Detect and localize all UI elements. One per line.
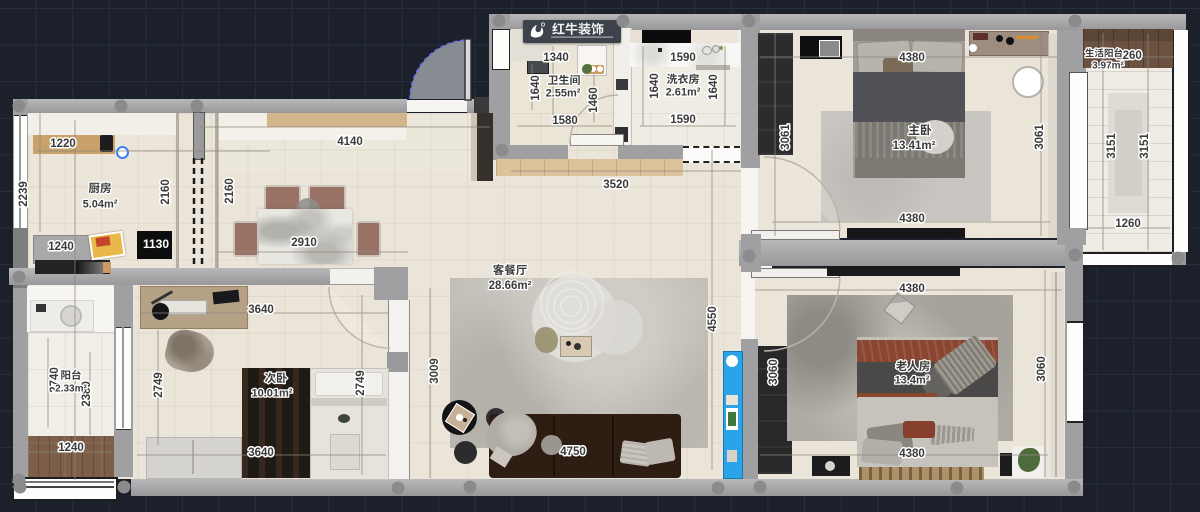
svg-text:3009: 3009 [429, 358, 441, 384]
svg-text:3640: 3640 [248, 447, 274, 459]
svg-text:1640: 1640 [649, 73, 661, 99]
svg-text:28.66m²: 28.66m² [489, 280, 532, 292]
svg-text:2239: 2239 [18, 181, 30, 207]
svg-text:4380: 4380 [899, 52, 925, 64]
svg-text:4380: 4380 [899, 448, 925, 460]
svg-text:1580: 1580 [552, 115, 578, 127]
svg-text:4750: 4750 [560, 446, 586, 458]
svg-text:3520: 3520 [603, 179, 629, 191]
svg-text:1640: 1640 [708, 74, 720, 100]
svg-text:4140: 4140 [337, 136, 363, 148]
svg-text:3.97m²: 3.97m² [1092, 60, 1124, 71]
svg-text:1260: 1260 [1115, 218, 1141, 230]
svg-text:2749: 2749 [153, 372, 165, 398]
svg-text:1130: 1130 [143, 237, 169, 251]
svg-text:1220: 1220 [50, 138, 76, 150]
svg-text:1340: 1340 [543, 52, 569, 64]
svg-text:1240: 1240 [58, 442, 84, 454]
svg-text:3151: 3151 [1106, 133, 1118, 159]
svg-text:3060: 3060 [768, 359, 780, 385]
svg-text:3060: 3060 [1036, 356, 1048, 382]
svg-text:4380: 4380 [899, 213, 925, 225]
svg-text:1640: 1640 [530, 75, 542, 101]
svg-text:2.61m²: 2.61m² [666, 87, 701, 99]
svg-text:3151: 3151 [1139, 133, 1151, 159]
svg-text:1460: 1460 [588, 87, 600, 113]
svg-text:4380: 4380 [899, 283, 925, 295]
svg-text:2.55m²: 2.55m² [546, 88, 581, 100]
svg-text:2160: 2160 [160, 179, 172, 205]
svg-text:2160: 2160 [224, 178, 236, 204]
svg-text:13.41m²: 13.41m² [893, 140, 936, 152]
svg-text:2749: 2749 [355, 370, 367, 396]
svg-text:10.01m²: 10.01m² [252, 388, 293, 400]
svg-text:2910: 2910 [291, 237, 317, 249]
svg-text:13.4m²: 13.4m² [895, 375, 930, 387]
svg-text:2.33m²: 2.33m² [55, 383, 87, 394]
svg-text:1240: 1240 [48, 241, 74, 253]
svg-text:3061: 3061 [1034, 124, 1046, 150]
svg-text:1590: 1590 [670, 52, 696, 64]
svg-text:4550: 4550 [707, 306, 719, 332]
svg-text:5.04m²: 5.04m² [83, 199, 118, 211]
svg-text:3061: 3061 [780, 124, 792, 150]
svg-text:1590: 1590 [670, 114, 696, 126]
svg-text:3640: 3640 [248, 304, 274, 316]
